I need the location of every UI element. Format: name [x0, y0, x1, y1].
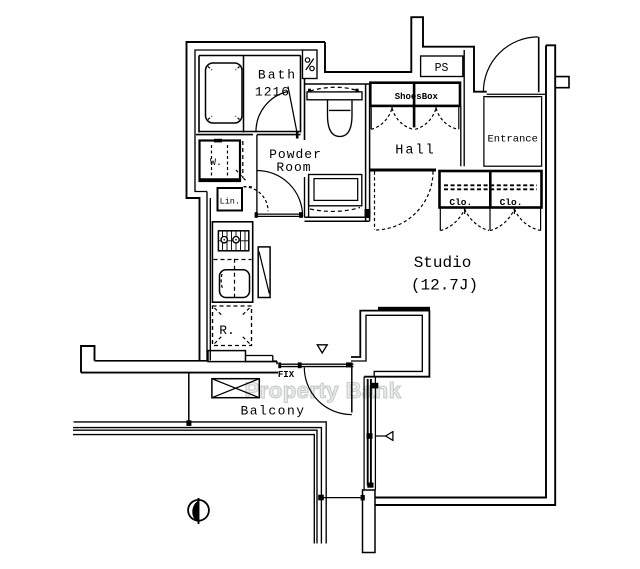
svg-text:Bath: Bath	[258, 68, 297, 83]
svg-text:Clo.: Clo.	[500, 197, 523, 208]
svg-text:(12.7J): (12.7J)	[411, 277, 478, 295]
svg-text:Clo.: Clo.	[449, 197, 472, 208]
svg-text:Studio: Studio	[414, 254, 472, 272]
svg-text:Room: Room	[276, 160, 311, 175]
svg-text:Balcony: Balcony	[240, 404, 305, 419]
svg-text:Lin.: Lin.	[220, 197, 240, 207]
svg-text:ShoesBox: ShoesBox	[395, 92, 439, 102]
svg-text:Property Bank: Property Bank	[245, 378, 402, 403]
svg-text:PS: PS	[435, 62, 449, 75]
svg-text:FIX: FIX	[278, 370, 295, 380]
svg-text:R.: R.	[219, 323, 235, 338]
svg-text:Hall: Hall	[395, 144, 435, 159]
svg-text:Entrance: Entrance	[487, 134, 537, 146]
